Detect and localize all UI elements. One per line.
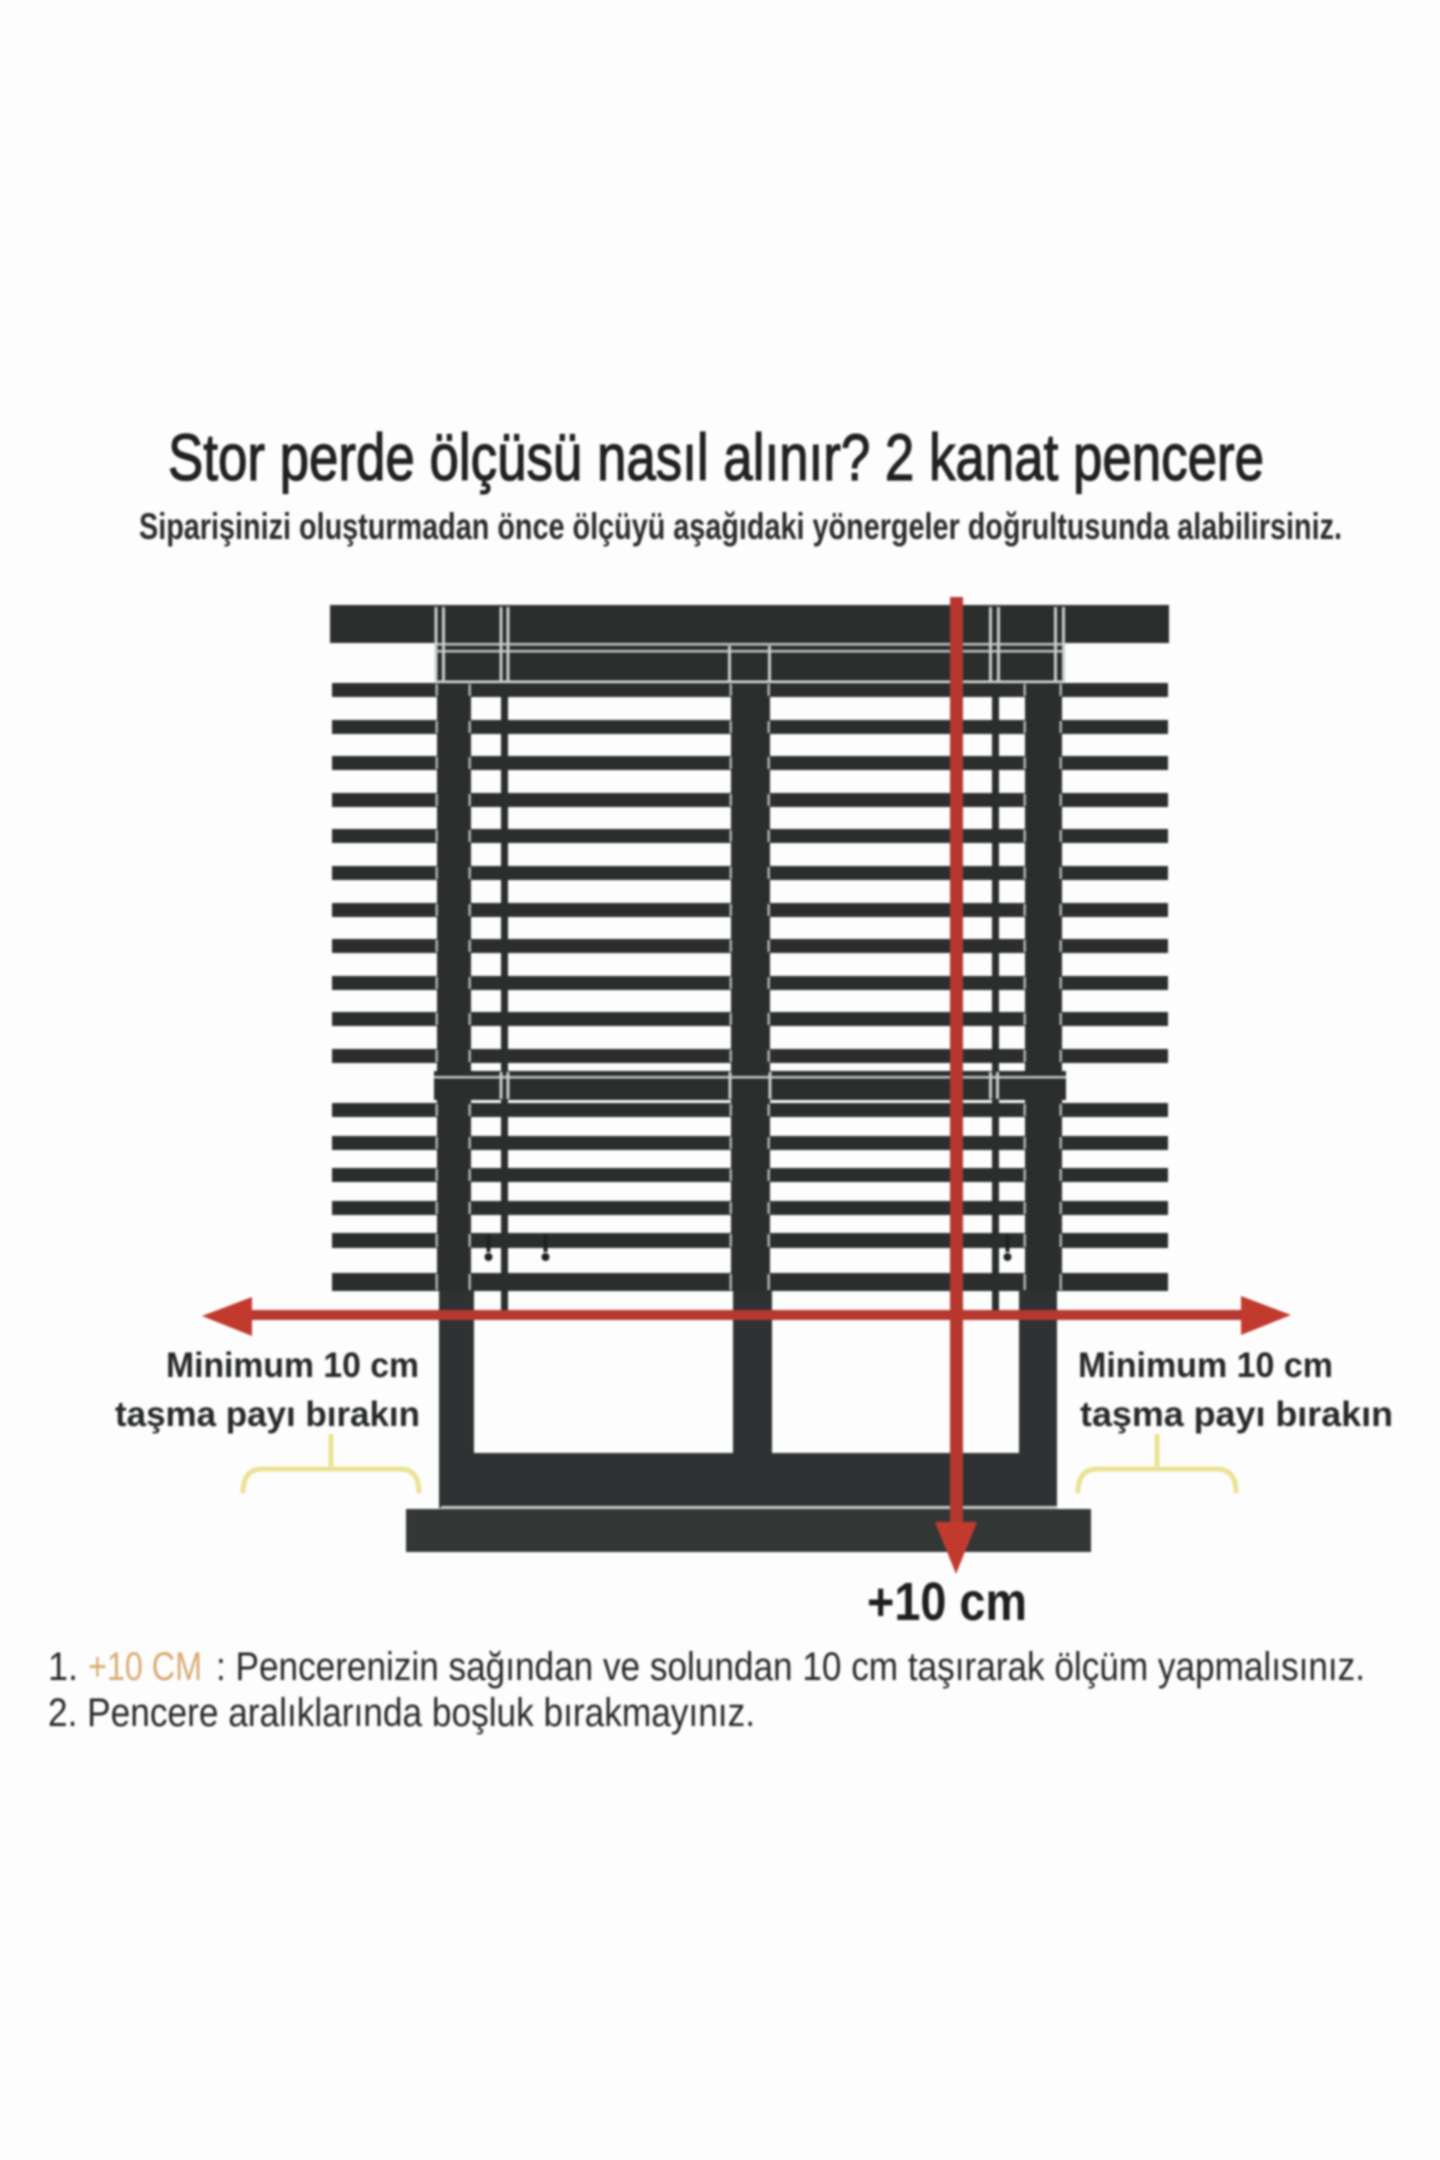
svg-text:Minimum 10 cm: Minimum 10 cm (166, 1346, 419, 1385)
svg-text:Siparişinizi oluşturmadan önce: Siparişinizi oluşturmadan önce ölçüyü aş… (139, 506, 1342, 547)
svg-text:+10 CM: +10 CM (88, 1645, 202, 1689)
svg-text:2. Pencere aralıklarında boşlu: 2. Pencere aralıklarında boşluk bırakmay… (48, 1691, 755, 1735)
svg-text:: Pencerenizin sağından ve sol: : Pencerenizin sağından ve solundan 10 c… (216, 1645, 1365, 1689)
svg-text:1.: 1. (48, 1645, 78, 1689)
svg-text:taşma payı bırakın: taşma payı bırakın (1080, 1395, 1393, 1434)
svg-text:Stor perde ölçüsü nasıl alınır: Stor perde ölçüsü nasıl alınır? 2 kanat … (168, 420, 1264, 494)
svg-text:taşma payı bırakın: taşma payı bırakın (115, 1395, 420, 1434)
svg-text:+10 cm: +10 cm (867, 1572, 1027, 1632)
svg-text:Minimum 10 cm: Minimum 10 cm (1078, 1346, 1333, 1385)
